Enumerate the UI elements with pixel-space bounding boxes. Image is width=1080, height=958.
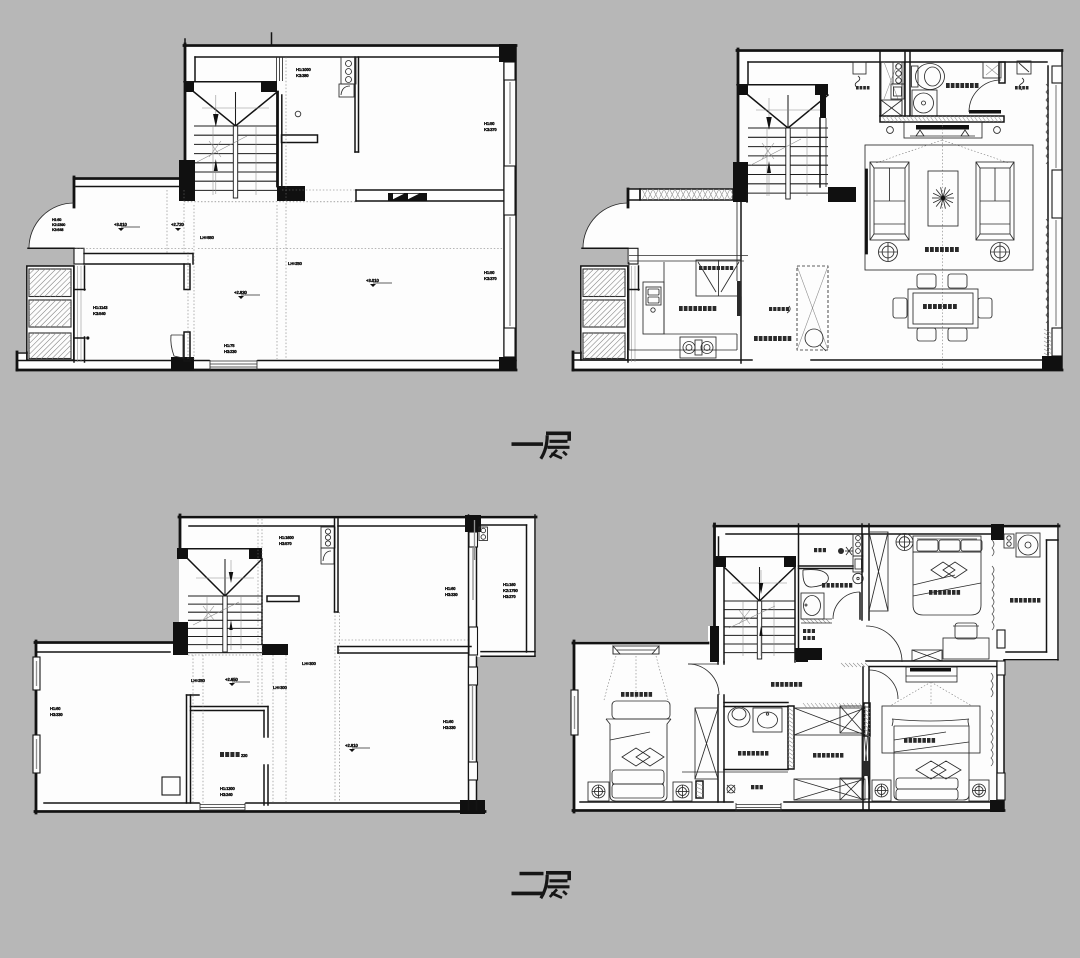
svg-text:H1:60: H1:60 [445,586,456,591]
svg-text:K3:370: K3:370 [484,127,497,132]
svg-text:H1:50: H1:50 [52,218,61,222]
svg-text:H3:230: H3:230 [224,349,237,354]
svg-text:H1:60: H1:60 [443,719,454,724]
svg-text:+2.650: +2.650 [225,677,238,682]
svg-text:H1:1300: H1:1300 [220,786,236,791]
svg-text:H3:330: H3:330 [445,592,458,597]
svg-text:K3:548: K3:548 [52,228,63,232]
svg-text:K3:370: K3:370 [484,276,497,281]
svg-text:LH=250: LH=250 [191,678,206,683]
svg-text:LH=300: LH=300 [302,661,317,666]
svg-text:+2.830: +2.830 [234,290,247,295]
svg-text:H1:1600: H1:1600 [279,535,295,540]
svg-text:K3:540: K3:540 [93,311,106,316]
svg-text:H3:240: H3:240 [220,792,233,797]
svg-text:H1:1143: H1:1143 [93,305,108,310]
svg-text:H1:160: H1:160 [503,582,516,587]
svg-text:H3:570: H3:570 [279,541,292,546]
svg-text:K2:2390: K2:2390 [52,223,65,227]
svg-text:H1:50: H1:50 [484,121,495,126]
svg-text:+2.720: +2.720 [171,222,184,227]
svg-text:+3.010: +3.010 [114,222,127,227]
svg-text:LH=250: LH=250 [288,261,303,266]
svg-text:LH=300: LH=300 [273,685,288,690]
svg-text:H1:1000: H1:1000 [296,67,312,72]
svg-text:H3:270: H3:270 [503,594,516,599]
svg-text:220: 220 [241,753,248,758]
svg-text:LH=550: LH=550 [200,235,215,240]
svg-text:H1:60: H1:60 [50,706,61,711]
svg-text:+3.010: +3.010 [366,278,379,283]
svg-text:K3:380: K3:380 [296,73,309,78]
svg-text:H1:50: H1:50 [484,270,495,275]
svg-text:H3:330: H3:330 [443,725,456,730]
svg-text:H1:75: H1:75 [224,343,235,348]
svg-text:K2:1790: K2:1790 [503,588,519,593]
svg-text:+2.810: +2.810 [345,743,358,748]
svg-text:H3:330: H3:330 [50,712,63,717]
